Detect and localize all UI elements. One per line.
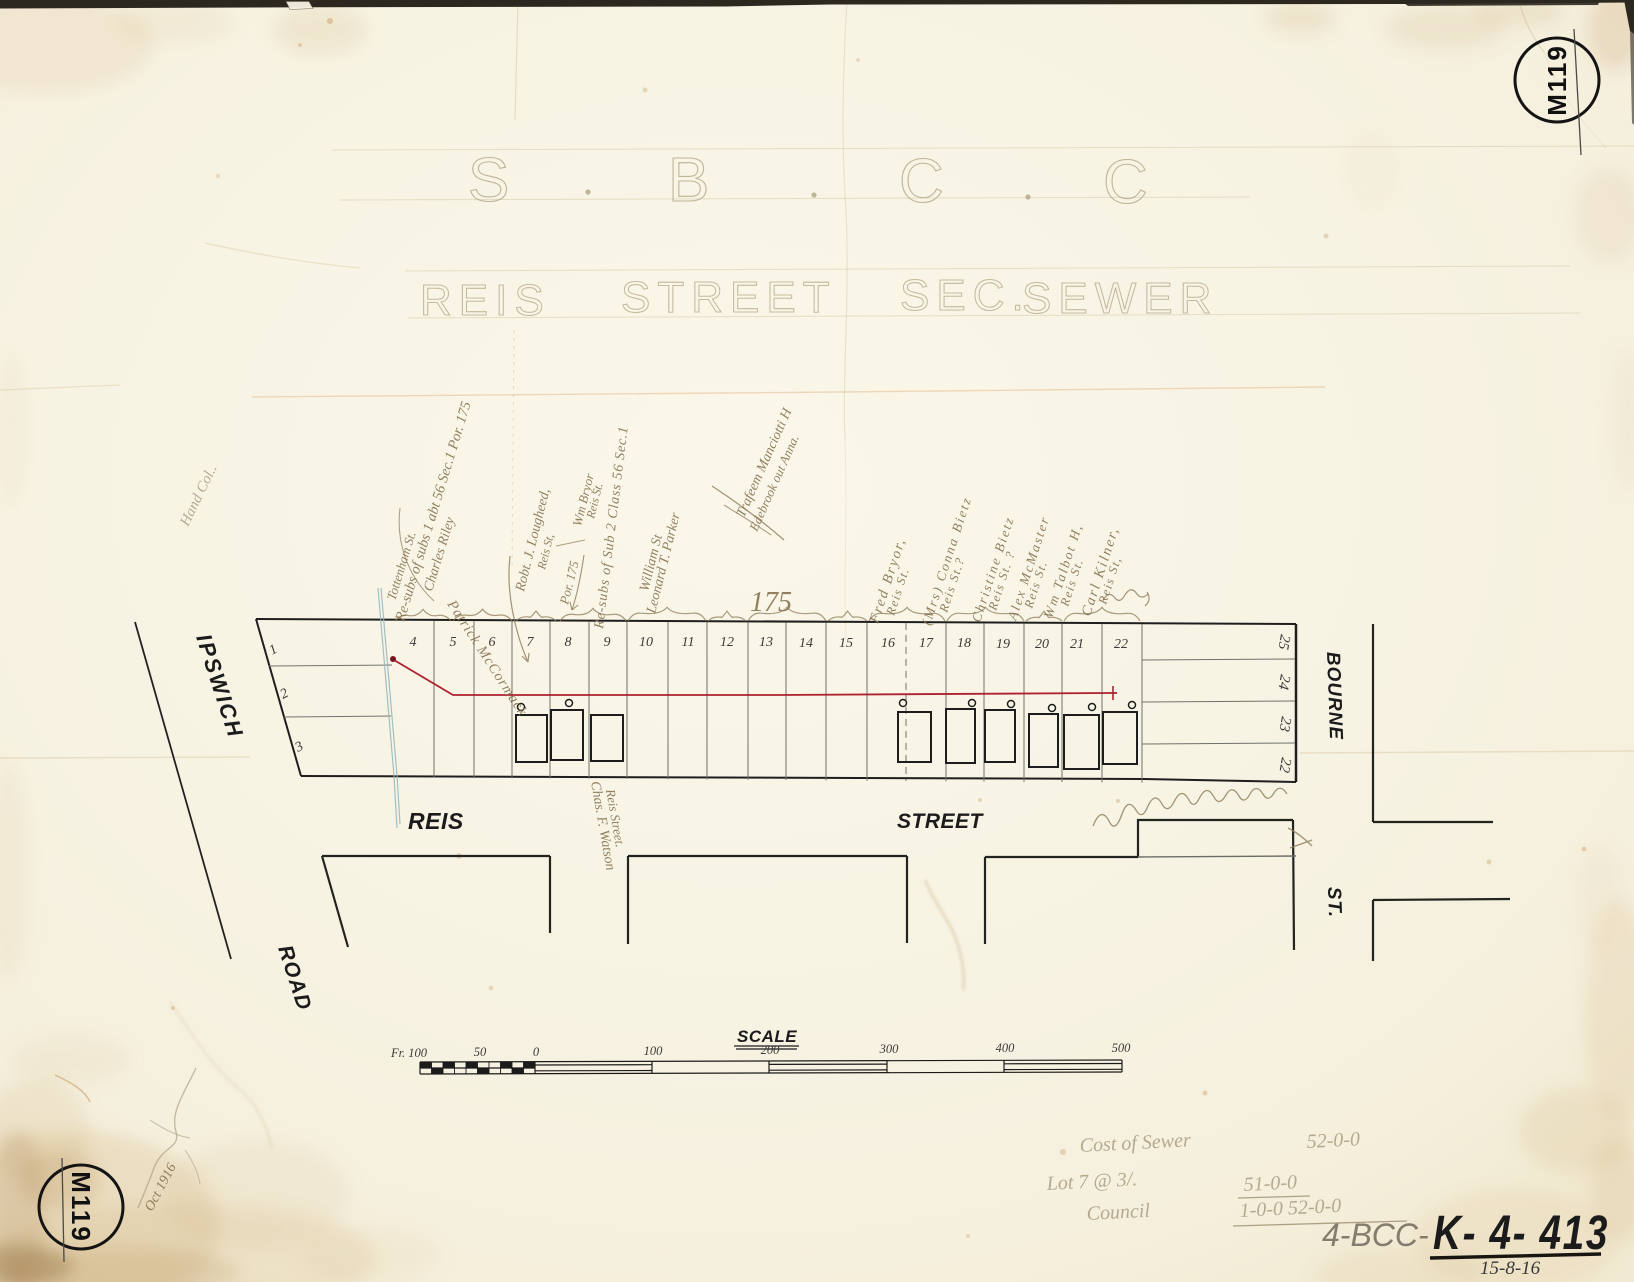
svg-text:8: 8 — [565, 635, 572, 650]
svg-text:11: 11 — [682, 635, 695, 650]
svg-text:K- 4- 413: K- 4- 413 — [1433, 1207, 1609, 1260]
svg-text:20: 20 — [1035, 637, 1049, 652]
svg-text:50: 50 — [474, 1045, 487, 1059]
svg-text:M119: M119 — [1542, 44, 1572, 116]
svg-text:15-8-16: 15-8-16 — [1480, 1258, 1541, 1279]
svg-text:SEC.: SEC. — [900, 271, 1031, 320]
svg-text:200: 200 — [761, 1043, 781, 1057]
svg-text:REIS: REIS — [408, 808, 464, 834]
svg-text:B: B — [668, 146, 709, 215]
svg-text:C: C — [1103, 148, 1148, 217]
svg-text:C: C — [899, 147, 944, 216]
svg-text:12: 12 — [720, 635, 734, 650]
svg-text:STREET: STREET — [621, 273, 837, 322]
svg-text:17: 17 — [919, 636, 934, 651]
svg-text:4: 4 — [410, 635, 417, 650]
svg-text:18: 18 — [957, 636, 971, 651]
svg-text:5: 5 — [450, 635, 457, 650]
svg-text:15: 15 — [839, 636, 853, 651]
svg-text:BOURNE: BOURNE — [1322, 651, 1346, 740]
svg-text:Council: Council — [1086, 1200, 1151, 1225]
svg-text:0: 0 — [533, 1045, 540, 1059]
svg-text:300: 300 — [879, 1042, 900, 1056]
svg-text:ST.: ST. — [1323, 886, 1345, 918]
svg-text:4-BCC-: 4-BCC- — [1322, 1217, 1429, 1253]
svg-text:14: 14 — [799, 636, 813, 651]
svg-text:19: 19 — [996, 637, 1010, 652]
svg-text:REIS: REIS — [420, 276, 551, 325]
svg-text:21: 21 — [1070, 637, 1084, 652]
svg-text:23: 23 — [1275, 715, 1293, 733]
svg-text:10: 10 — [639, 635, 653, 650]
svg-text:STREET: STREET — [897, 810, 985, 833]
svg-text:400: 400 — [996, 1041, 1016, 1055]
svg-text:SEWER: SEWER — [1022, 274, 1218, 323]
svg-text:175: 175 — [750, 587, 792, 618]
svg-text:9: 9 — [604, 635, 611, 650]
svg-text:Fr. 100: Fr. 100 — [390, 1046, 428, 1060]
svg-text:7: 7 — [527, 635, 535, 650]
svg-text:500: 500 — [1112, 1041, 1132, 1055]
svg-text:M119: M119 — [66, 1171, 96, 1243]
svg-text:S: S — [468, 146, 509, 215]
svg-text:22: 22 — [1114, 637, 1128, 652]
svg-text:52-0-0: 52-0-0 — [1306, 1128, 1360, 1153]
svg-text:16: 16 — [881, 636, 895, 651]
svg-text:51-0-0: 51-0-0 — [1243, 1171, 1297, 1196]
svg-text:13: 13 — [759, 635, 773, 650]
svg-text:100: 100 — [644, 1044, 664, 1058]
